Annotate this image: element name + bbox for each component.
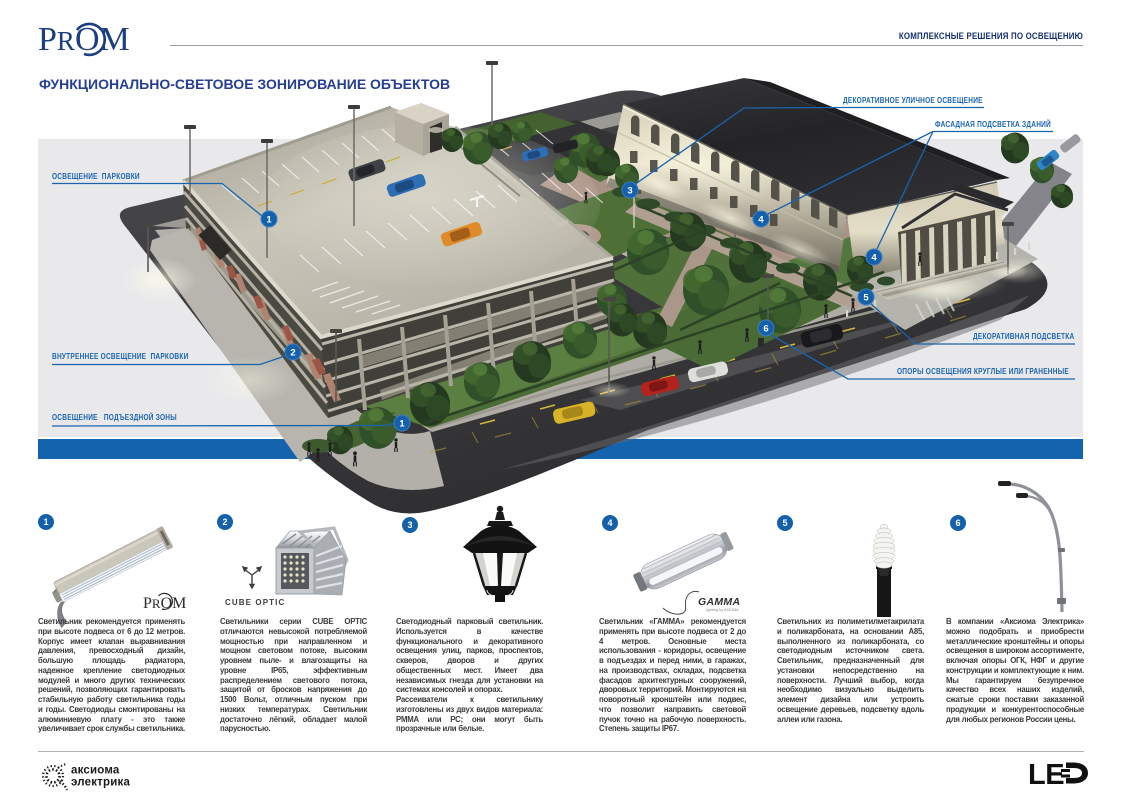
svg-text:6: 6 — [763, 324, 768, 335]
svg-text:2: 2 — [290, 348, 295, 359]
svg-text:GAMMA: GAMMA — [698, 596, 740, 608]
svg-text:lighting by AXIOMA: lighting by AXIOMA — [706, 608, 739, 612]
svg-text:аксиома: аксиома — [71, 765, 120, 777]
svg-text:LE: LE — [1028, 759, 1064, 788]
svg-text:4: 4 — [871, 253, 877, 264]
svg-text:1: 1 — [399, 419, 405, 430]
svg-text:3: 3 — [627, 186, 632, 197]
svg-text:электрика: электрика — [71, 777, 130, 789]
svg-text:1: 1 — [266, 215, 272, 226]
svg-text:CUBE OPTIC: CUBE OPTIC — [225, 598, 285, 607]
svg-text:5: 5 — [863, 293, 869, 304]
svg-text:4: 4 — [758, 215, 764, 226]
